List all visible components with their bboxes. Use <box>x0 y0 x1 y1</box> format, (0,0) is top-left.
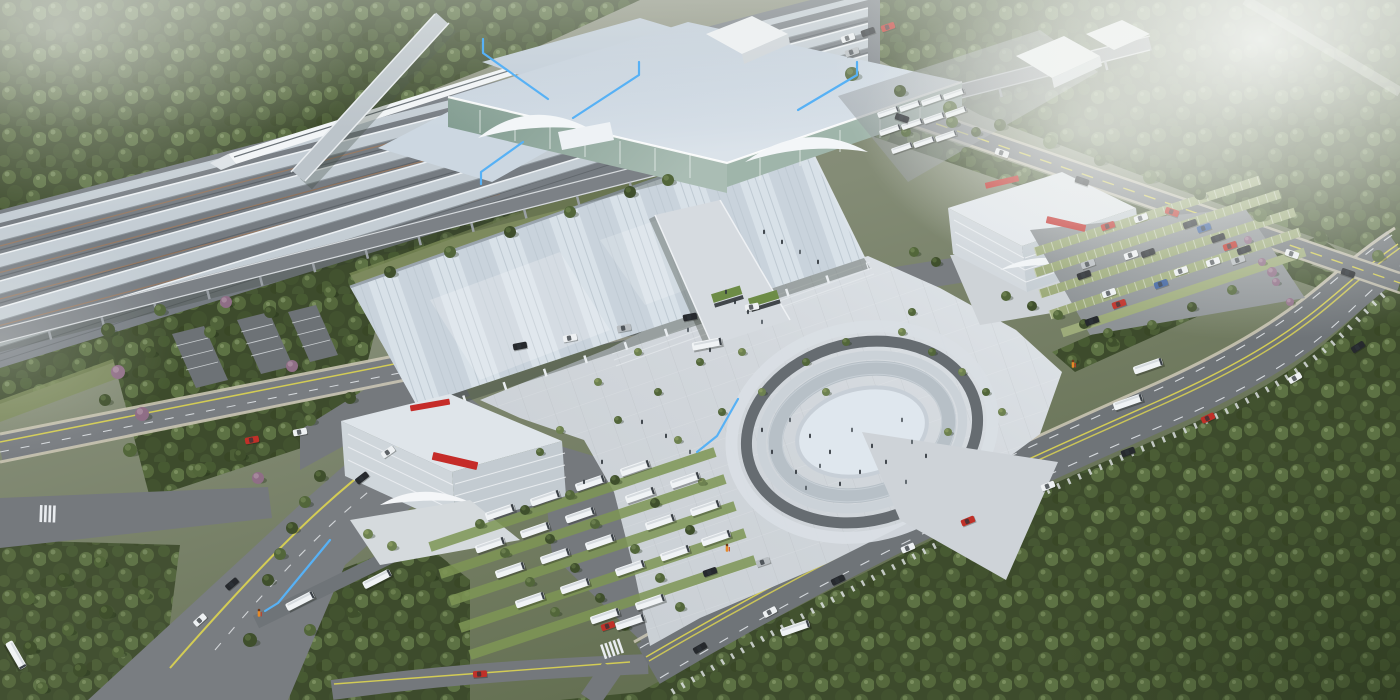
pedestrian <box>911 440 913 445</box>
tree-highlight <box>899 329 903 333</box>
tree-highlight <box>346 393 351 398</box>
pedestrian <box>901 418 903 423</box>
car-glass <box>477 671 482 676</box>
tree-canopy <box>99 605 113 619</box>
tree-highlight <box>306 415 311 420</box>
tree-highlight <box>719 409 723 413</box>
tree-highlight <box>546 535 551 540</box>
tree-canopy <box>738 348 746 356</box>
tree-canopy <box>504 226 516 238</box>
tree-canopy <box>944 428 952 436</box>
tree-canopy <box>556 426 564 434</box>
tree-highlight <box>596 594 601 599</box>
tree-highlight <box>566 491 571 496</box>
tree-highlight <box>364 530 369 535</box>
tree-highlight <box>125 444 131 450</box>
pedestrian <box>761 320 763 325</box>
pedestrian <box>829 450 831 455</box>
tree-highlight <box>288 523 293 528</box>
tree-canopy <box>384 266 396 278</box>
tree-highlight <box>999 409 1003 413</box>
tree-canopy <box>520 505 530 515</box>
tree-canopy <box>36 682 48 694</box>
tree-canopy <box>1053 310 1063 320</box>
pedestrian <box>601 460 603 465</box>
tree-canopy <box>614 416 622 424</box>
tree-canopy <box>525 577 535 587</box>
tree-highlight <box>276 549 281 554</box>
tree-canopy <box>958 368 966 376</box>
tree-highlight <box>664 175 669 180</box>
tree-highlight <box>195 464 201 470</box>
tree-canopy <box>286 360 298 372</box>
tree-canopy <box>346 606 358 618</box>
tree-highlight <box>635 349 639 353</box>
tree-highlight <box>206 327 211 332</box>
tree-canopy <box>594 378 602 386</box>
tree-canopy <box>650 498 660 508</box>
tree-canopy <box>62 624 74 636</box>
tree-highlight <box>557 427 561 431</box>
tree-highlight <box>316 471 321 476</box>
tree-highlight <box>675 437 679 441</box>
tree-highlight <box>611 476 616 481</box>
tree-highlight <box>631 545 636 550</box>
tree-canopy <box>1027 301 1037 311</box>
tree-highlight <box>1080 320 1085 325</box>
tree-canopy <box>550 607 560 617</box>
pedestrian <box>859 470 861 475</box>
tree-highlight <box>803 359 807 363</box>
tree-canopy <box>314 470 326 482</box>
tree-canopy <box>389 588 401 600</box>
pedestrian <box>799 250 801 255</box>
tree-canopy <box>624 186 636 198</box>
tree-highlight <box>566 207 571 212</box>
pedestrian <box>809 434 811 439</box>
pedestrian <box>781 240 783 245</box>
tree-canopy <box>112 646 124 658</box>
tree-highlight <box>537 449 541 453</box>
tree-highlight <box>301 497 306 502</box>
tree-canopy <box>564 206 576 218</box>
tree-highlight <box>386 267 391 272</box>
tree-canopy <box>123 443 137 457</box>
pedestrian <box>583 480 585 485</box>
pedestrian <box>725 290 727 295</box>
tree-canopy <box>654 388 662 396</box>
tree-highlight <box>759 389 763 393</box>
fog-top-right-soft <box>860 0 1300 270</box>
tree-highlight <box>38 683 43 688</box>
tree-canopy <box>344 392 356 404</box>
tree-highlight <box>222 297 227 302</box>
pedestrian <box>687 328 689 333</box>
tree-highlight <box>264 575 269 580</box>
tree-canopy <box>57 573 71 587</box>
surveyor-instrument <box>729 547 730 551</box>
tree-highlight <box>23 592 29 598</box>
surveyor-body <box>1072 362 1075 368</box>
tree-highlight <box>101 606 107 612</box>
tree-highlight <box>1104 329 1109 334</box>
tree-highlight <box>651 499 656 504</box>
pedestrian <box>763 230 765 235</box>
pedestrian <box>771 450 773 455</box>
tree-canopy <box>264 306 276 318</box>
surveyor-head <box>1072 360 1075 363</box>
tree-canopy <box>595 593 605 603</box>
tree-highlight <box>983 389 987 393</box>
tree-highlight <box>615 417 619 421</box>
tree-highlight <box>526 578 531 583</box>
tree-highlight <box>909 309 913 313</box>
tree-highlight <box>501 549 506 554</box>
tree-canopy <box>243 633 257 647</box>
tree-highlight <box>945 429 949 433</box>
tree-canopy <box>909 247 919 257</box>
tree-highlight <box>551 608 556 613</box>
tree-canopy <box>324 286 336 298</box>
tree-canopy <box>674 436 682 444</box>
tree-highlight <box>96 557 101 562</box>
tree-canopy <box>286 522 298 534</box>
tree-highlight <box>626 187 631 192</box>
tree-highlight <box>686 526 691 531</box>
tree-highlight <box>254 473 259 478</box>
pedestrian <box>925 454 927 459</box>
tree-canopy <box>898 328 906 336</box>
tree-canopy <box>842 338 850 346</box>
tree-canopy <box>545 534 555 544</box>
tree-canopy <box>500 548 510 558</box>
tree-canopy <box>363 529 373 539</box>
car <box>473 670 488 679</box>
surveyor-body <box>726 546 729 552</box>
tree-highlight <box>326 287 331 292</box>
tree-highlight <box>697 359 701 363</box>
tree-canopy <box>685 525 695 535</box>
tree-canopy <box>610 475 620 485</box>
tree-canopy <box>655 573 665 583</box>
tree-highlight <box>75 664 81 670</box>
pedestrian <box>641 420 643 425</box>
tree-canopy <box>252 472 264 484</box>
tree-canopy <box>1103 328 1113 338</box>
tree-canopy <box>634 348 642 356</box>
tree-canopy <box>73 663 87 677</box>
tree-canopy <box>802 358 810 366</box>
tree-canopy <box>346 334 358 346</box>
tree-highlight <box>245 634 251 640</box>
tree-canopy <box>387 541 397 551</box>
tree-canopy <box>998 408 1006 416</box>
tree-canopy <box>262 574 274 586</box>
tree-highlight <box>595 379 599 383</box>
tree-canopy <box>204 326 216 338</box>
tree-highlight <box>426 571 431 576</box>
tree-canopy <box>424 570 436 582</box>
surveyor-instrument <box>261 612 262 616</box>
tree-highlight <box>1068 356 1073 361</box>
pedestrian <box>819 464 821 469</box>
tree-highlight <box>236 450 241 455</box>
tree-highlight <box>306 625 311 630</box>
tree-canopy <box>928 348 936 356</box>
tree-canopy <box>220 296 232 308</box>
tree-highlight <box>59 574 65 580</box>
pedestrian <box>871 444 873 449</box>
pedestrian <box>839 482 841 487</box>
tree-canopy <box>931 257 941 267</box>
tree-canopy <box>590 519 600 529</box>
tree-canopy <box>299 496 311 508</box>
tree-canopy <box>234 449 246 461</box>
tree-canopy <box>444 246 456 258</box>
tree-canopy <box>565 490 575 500</box>
tree-canopy <box>536 448 544 456</box>
tree-highlight <box>521 506 526 511</box>
tree-highlight <box>843 339 847 343</box>
tree-highlight <box>656 574 661 579</box>
tree-canopy <box>23 641 37 655</box>
pedestrian <box>905 480 907 485</box>
tree-canopy <box>718 408 726 416</box>
tree-highlight <box>140 589 145 594</box>
pedestrian <box>795 470 797 475</box>
pedestrian <box>761 428 763 433</box>
tree-highlight <box>25 642 31 648</box>
tree-highlight <box>1028 302 1033 307</box>
pedestrian <box>747 310 749 315</box>
tree-highlight <box>63 625 68 630</box>
surveyor-head <box>258 609 261 612</box>
tree-canopy <box>274 548 286 560</box>
tree-highlight <box>571 564 576 569</box>
pedestrian <box>789 418 791 423</box>
tree-highlight <box>114 647 119 652</box>
pedestrian <box>665 434 667 439</box>
tree-highlight <box>288 361 293 366</box>
tree-canopy <box>193 463 207 477</box>
tree-highlight <box>348 335 353 340</box>
tree-canopy <box>758 388 766 396</box>
pedestrian <box>709 348 711 353</box>
surveyor-instrument <box>1075 363 1076 367</box>
tree-highlight <box>932 258 937 263</box>
tree-highlight <box>959 369 963 373</box>
tree-canopy <box>908 308 916 316</box>
pedestrian <box>689 450 691 455</box>
tree-canopy <box>822 388 830 396</box>
tree-highlight <box>348 607 353 612</box>
tree-canopy <box>475 519 485 529</box>
tree-highlight <box>1002 292 1007 297</box>
tree-highlight <box>266 307 271 312</box>
surveyor-body <box>258 611 261 617</box>
aerial-render-stage <box>0 0 1400 700</box>
tree-canopy <box>304 414 316 426</box>
tree-canopy <box>138 588 150 600</box>
tree-canopy <box>696 358 704 366</box>
tree-canopy <box>982 388 990 396</box>
tree-highlight <box>446 247 451 252</box>
tree-highlight <box>1054 311 1059 316</box>
tree-canopy <box>21 591 35 605</box>
tree-highlight <box>676 603 681 608</box>
tree-highlight <box>1108 338 1113 343</box>
tree-highlight <box>506 227 511 232</box>
tree-highlight <box>388 542 393 547</box>
tree-canopy <box>1001 291 1011 301</box>
pedestrian <box>885 460 887 465</box>
pedestrian <box>817 260 819 265</box>
tree-canopy <box>662 174 674 186</box>
tree-canopy <box>304 624 316 636</box>
surveyor-head <box>726 544 729 547</box>
tree-canopy <box>94 556 106 568</box>
tree-highlight <box>476 520 481 525</box>
tree-highlight <box>910 248 915 253</box>
tree-highlight <box>591 520 596 525</box>
tree-canopy <box>630 544 640 554</box>
pedestrian <box>734 300 736 305</box>
tree-canopy <box>675 602 685 612</box>
tree-highlight <box>823 389 827 393</box>
railway-station-aerial-render <box>0 0 1400 700</box>
tree-canopy <box>1107 337 1117 347</box>
tree-highlight <box>655 389 659 393</box>
pedestrian <box>805 486 807 491</box>
tree-highlight <box>739 349 743 353</box>
tree-highlight <box>391 589 396 594</box>
pedestrian <box>851 428 853 433</box>
tree-canopy <box>570 563 580 573</box>
tree-highlight <box>929 349 933 353</box>
